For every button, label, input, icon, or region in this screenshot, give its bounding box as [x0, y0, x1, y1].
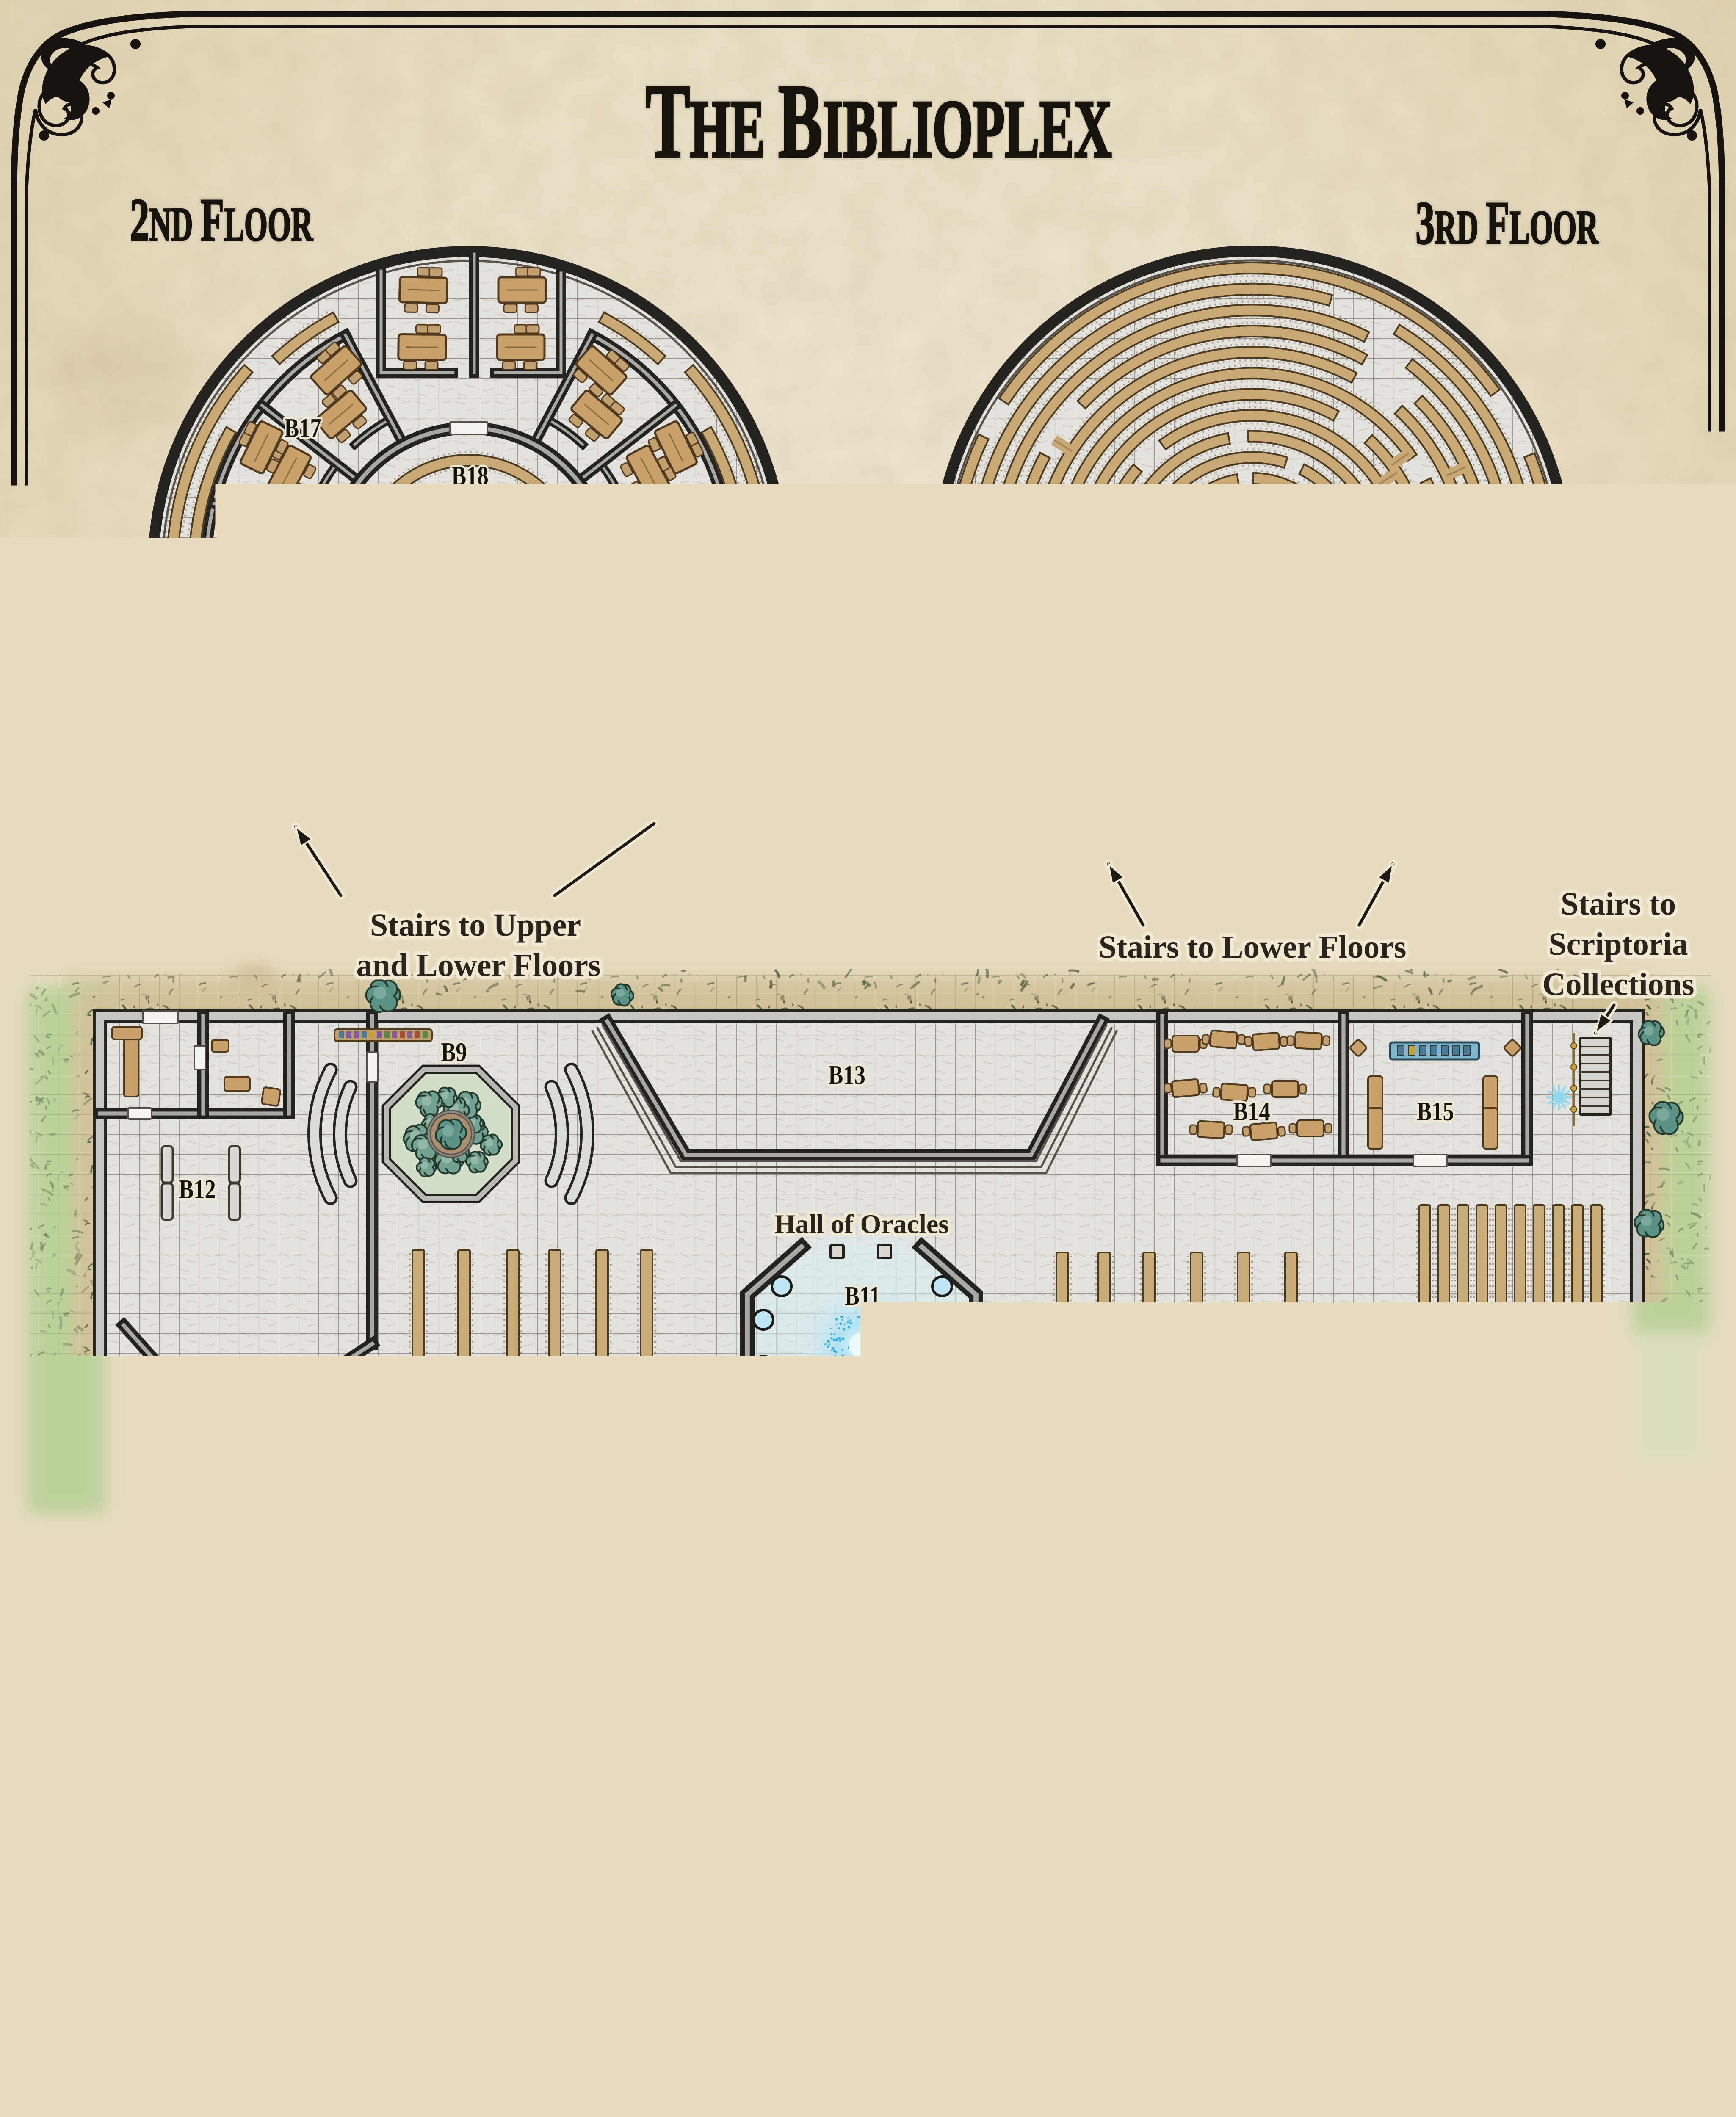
svg-text:B9: B9 — [208, 1376, 234, 1406]
svg-text:B2: B2 — [733, 1890, 759, 1920]
svg-text:Stairs to: Stairs to — [403, 1903, 518, 1939]
svg-text:B13: B13 — [828, 1060, 865, 1090]
svg-text:Upper Floors: Upper Floors — [1071, 1935, 1253, 1971]
svg-text:B14: B14 — [1233, 1096, 1270, 1126]
svg-text:B19: B19 — [1231, 746, 1268, 776]
svg-text:Stairs to Upper: Stairs to Upper — [370, 907, 581, 943]
svg-text:B15: B15 — [1417, 1096, 1454, 1126]
svg-text:B12: B12 — [179, 1174, 216, 1204]
svg-text:B16: B16 — [247, 557, 284, 587]
svg-text:B7: B7 — [1491, 1646, 1517, 1676]
svg-text:Stairs to: Stairs to — [1561, 886, 1676, 922]
svg-text:B8: B8 — [662, 1518, 688, 1548]
svg-text:B4: B4 — [848, 1803, 874, 1833]
svg-text:B1: B1 — [852, 2061, 878, 2091]
svg-text:B5: B5 — [712, 1810, 738, 1841]
svg-text:B6: B6 — [986, 1810, 1012, 1841]
svg-text:B10: B10 — [1501, 1366, 1538, 1396]
svg-text:B11: B11 — [845, 1281, 881, 1311]
svg-text:Stairs to Lower Floors: Stairs to Lower Floors — [1099, 929, 1407, 965]
svg-text:B7: B7 — [439, 1647, 465, 1678]
svg-text:B17: B17 — [284, 413, 321, 443]
svg-text:N: N — [1471, 2039, 1521, 2116]
svg-text:Scriptoria: Scriptoria — [1548, 926, 1688, 962]
svg-text:Upper Floors: Upper Floors — [371, 1940, 554, 1976]
svg-text:B10: B10 — [520, 1354, 557, 1384]
svg-text:Hall of Oracles: Hall of Oracles — [774, 1209, 949, 1239]
svg-text:B7: B7 — [210, 1647, 236, 1678]
svg-text:B18: B18 — [451, 461, 488, 491]
svg-text:B8: B8 — [986, 1523, 1012, 1553]
svg-text:B9: B9 — [441, 1037, 467, 1067]
svg-text:B7: B7 — [1255, 1646, 1281, 1676]
svg-text:B3: B3 — [997, 1885, 1023, 1915]
svg-text:and Lower Floors: and Lower Floors — [356, 948, 600, 983]
svg-text:B10: B10 — [1162, 1355, 1199, 1385]
svg-text:Collections: Collections — [1542, 967, 1695, 1002]
svg-text:Stairs to: Stairs to — [1102, 1898, 1217, 1934]
svg-text:B4: B4 — [847, 1625, 873, 1655]
